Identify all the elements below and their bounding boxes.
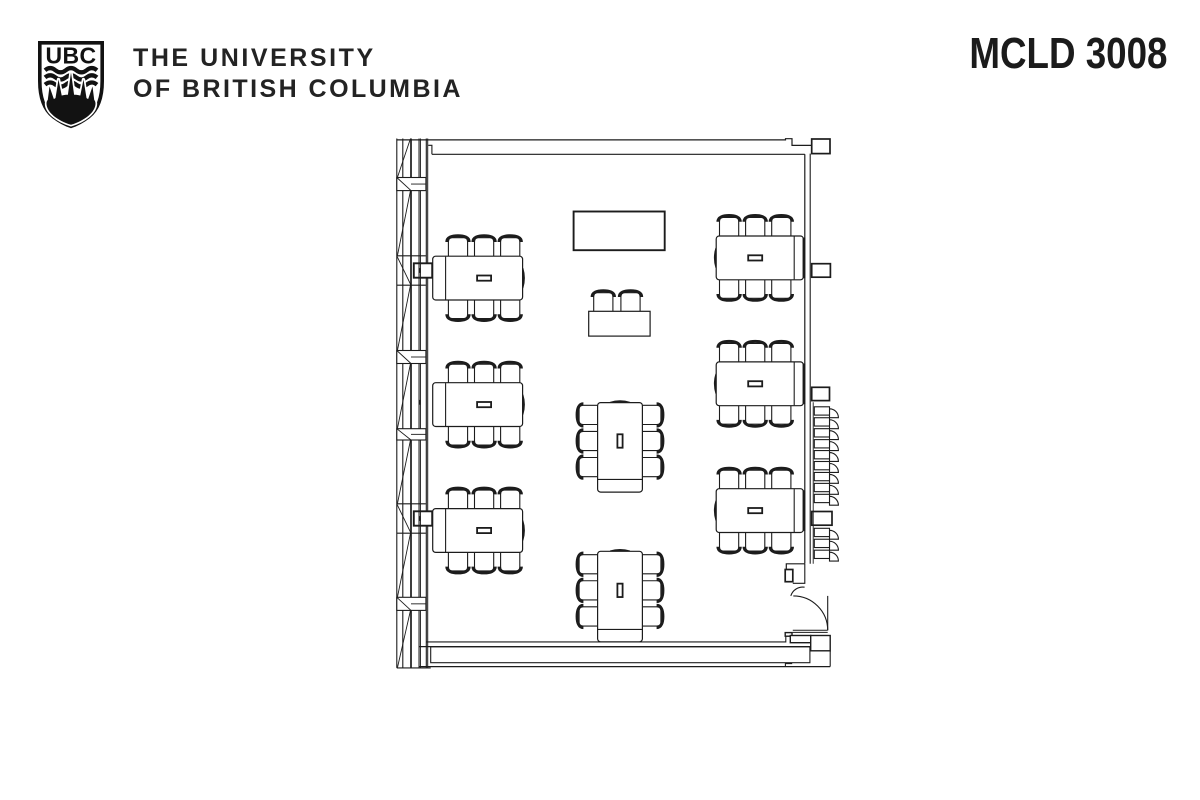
svg-text:UBC: UBC bbox=[45, 42, 96, 68]
